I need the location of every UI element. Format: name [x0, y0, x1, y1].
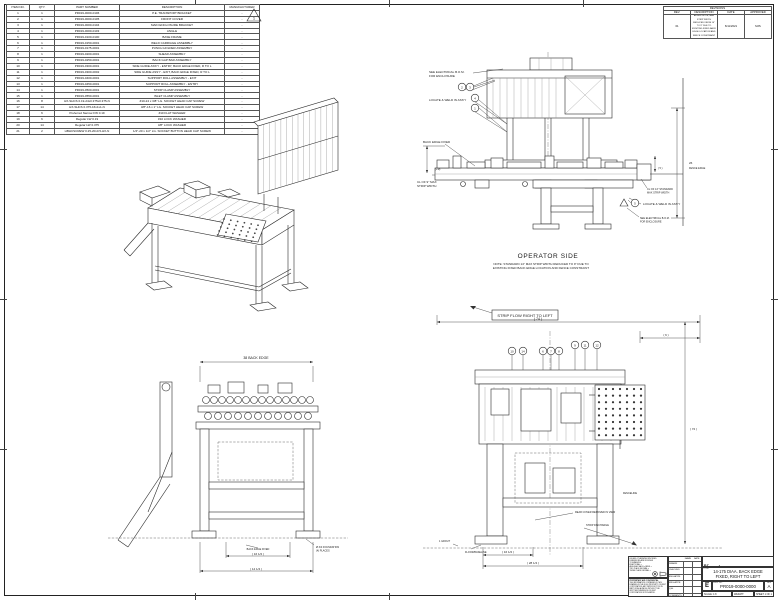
svg-text:14: 14: [521, 349, 525, 353]
logo-cell: Kent CORPORATION: [702, 556, 774, 567]
balloon-callout[interactable]: 14: [519, 347, 527, 370]
svg-text:FOR ENCLOSURE: FOR ENCLOSURE: [429, 74, 455, 78]
balloon-callout[interactable]: 8: [555, 347, 563, 370]
proprietary-block: PROPRIETARY AND CONFIDENTIAL THE INFORMA…: [628, 578, 668, 597]
zone-tick: [389, 0, 390, 7]
approval-row: COMMENTS:: [669, 594, 701, 597]
balloon-callout[interactable]: 7: [547, 347, 555, 370]
rev-number: 01: [664, 15, 691, 38]
svg-text:FENCELINE: FENCELINE: [623, 492, 637, 495]
side-elevation-view: 38 BACK EDGE BACK EDGE FIXED ( 16 1/2 ) …: [108, 342, 348, 587]
svg-text:BACK EDGE FIXED: BACK EDGE FIXED: [247, 548, 270, 551]
zone-tick: [195, 593, 196, 600]
rev-approved: MJS: [745, 15, 772, 38]
bom-cell: 2: [30, 128, 55, 134]
svg-text:EXISTING FIXED BACK EDGE LOCAT: EXISTING FIXED BACK EDGE LOCATION AND FE…: [493, 266, 589, 270]
balloon-callout[interactable]: 11: [581, 341, 589, 370]
bom-cell: HX-SHCS 0.19-24x0.375x0.375-N: [55, 99, 120, 105]
sheet-cell: SHEET 1 OF 1: [754, 591, 774, 597]
svg-text:( 28 1/4 ): ( 28 1/4 ): [527, 561, 539, 565]
svg-text:( 16 1/2 ): ( 16 1/2 ): [252, 552, 264, 556]
svg-text:STRIP WIDTH: STRIP WIDTH: [417, 184, 436, 188]
balloon-callout[interactable]: 9: [571, 341, 579, 370]
drawing-number: PR019-0000-0000: [713, 584, 763, 589]
svg-text:( 72 ): ( 72 ): [690, 427, 697, 431]
balloon-callout[interactable]: 12: [593, 341, 601, 370]
svg-text:STRIP DISCHARGE: STRIP DISCHARGE: [586, 524, 609, 527]
svg-text:11: 11: [583, 343, 586, 347]
bom-cell: 21: [7, 128, 30, 134]
bom-cell: HBHCSCREW 0.25-20x0.5-HX-N: [55, 128, 120, 134]
svg-text:26: 26: [689, 161, 693, 165]
balloon-callout[interactable]: 5: [628, 199, 639, 207]
svg-text:( 14 1/4 ): ( 14 1/4 ): [250, 567, 262, 571]
title-cell: TITLE: 14-175 DIAA. BACK EDGEFIXED, RIGH…: [702, 567, 774, 581]
svg-text:BACK EDGE FIXED: BACK EDGE FIXED: [423, 140, 451, 144]
op-enclosure: [487, 58, 612, 118]
svg-text:( 5 ): ( 5 ): [658, 167, 663, 170]
svg-text:1 GROUT: 1 GROUT: [439, 540, 451, 543]
balloon-callout[interactable]: 6: [539, 347, 547, 370]
weight-cell: WEIGHT:: [732, 591, 754, 597]
svg-text:FENCE EDGE: FENCE EDGE: [689, 167, 706, 170]
iso-enclosure-panel: [254, 98, 338, 194]
rev-description: ADDED NOTE; MAX STRIP WIDTH REDUCED FROM…: [691, 15, 718, 38]
front-view: STRIP FLOW RIGHT TO LEFT: [423, 303, 723, 593]
svg-text:MAX STRIP WIDTH: MAX STRIP WIDTH: [647, 192, 670, 195]
rev-date: 6/11/2021: [718, 15, 745, 38]
size-cell: SIZE E: [702, 581, 712, 591]
perforated-panel: [589, 385, 645, 449]
tolerance-block: UNLESS OTHERWISE SPECIFIED:DIMENSIONS AR…: [628, 556, 668, 578]
svg-text:( 6 ): ( 6 ): [663, 333, 668, 337]
third-angle-projection-icon: [651, 571, 667, 577]
svg-text:10: 10: [510, 349, 514, 353]
revision-letter: A: [765, 584, 773, 589]
rev-cell: REV A: [764, 581, 774, 591]
side-base-frame: [192, 429, 320, 538]
svg-text:( 16 1/2 ): ( 16 1/2 ): [502, 550, 514, 554]
weld-flag-triangle: [620, 199, 628, 206]
scale-cell: SCALE: 1:8: [702, 591, 732, 597]
dwg-no-cell: DWG. NO. PR019-0000-0000: [712, 581, 764, 591]
iso-machine-bed: [140, 181, 294, 245]
svg-text:(4) PLACES: (4) PLACES: [316, 550, 330, 553]
zone-tick: [389, 593, 390, 600]
zone-tick: [0, 299, 7, 300]
side-chute: [118, 382, 172, 547]
svg-text:( 74 ): ( 74 ): [534, 317, 542, 321]
svg-text:STRIP FLOW RIGHT TO LEFT: STRIP FLOW RIGHT TO LEFT: [497, 313, 553, 318]
svg-text:12: 12: [595, 343, 599, 347]
svg-text:FOR ENCLOSURE: FOR ENCLOSURE: [640, 221, 662, 224]
title-block: UNLESS OTHERWISE SPECIFIED:DIMENSIONS AR…: [628, 556, 774, 597]
balloon-callout[interactable]: 10: [508, 347, 516, 370]
isometric-view: [118, 88, 358, 333]
zone-tick: [0, 149, 7, 150]
svg-text:1: 1: [253, 16, 256, 21]
bom-cell: SIDE GUIDE ASS'Y - EXIT, BACK EDGE FIXED…: [120, 69, 225, 75]
zone-tick: [771, 299, 778, 300]
zone-tick: [0, 449, 7, 450]
operator-side-view: SEE ELECTRICAL B.O.M. FOR ENCLOSURE LOCA…: [415, 48, 777, 273]
zone-tick: [771, 449, 778, 450]
drawing-sheet: ITEM NO. QTY. PART NUMBER DESCRIPTION MA…: [0, 0, 778, 600]
svg-text:LOCATE & WELD IN ASS'Y: LOCATE & WELD IN ASS'Y: [643, 202, 680, 206]
bom-cell: SIDE GUIDE ASS'Y - ENTRY, BACK EDGE FIXE…: [120, 63, 225, 69]
discharge-arrowhead: [632, 541, 638, 546]
revision-row: 01 ADDED NOTE; MAX STRIP WIDTH REDUCED F…: [664, 15, 772, 38]
svg-text:OPERATOR SIDE: OPERATOR SIDE: [518, 253, 579, 260]
strip-flow-callout: STRIP FLOW RIGHT TO LEFT: [470, 306, 558, 320]
zone-tick: [583, 0, 584, 7]
op-base: [533, 180, 633, 229]
svg-text:38 BACK EDGE: 38 BACK EDGE: [243, 356, 269, 360]
revisions-table: REVISIONS REV. DESCRIPTION DATE APPROVED…: [663, 6, 772, 39]
svg-text:FLOOR/BASELINE: FLOOR/BASELINE: [465, 551, 487, 554]
revision-delta-symbol: 1: [246, 8, 262, 22]
drawing-title: 14-175 DIAA. BACK EDGEFIXED, RIGHT TO LE…: [703, 570, 773, 579]
svg-text:LOCATE & WELD IN ASS'Y: LOCATE & WELD IN ASS'Y: [429, 98, 466, 102]
side-top-assembly: [196, 382, 320, 429]
svg-text:REAR COVER REMOVED IN VIEW: REAR COVER REMOVED IN VIEW: [575, 511, 616, 514]
svg-text:(+9): (+9): [435, 167, 440, 171]
approvals-block: NAME DATE DRAWNCHECKEDENG APPR.MFG APPR.…: [668, 556, 702, 597]
